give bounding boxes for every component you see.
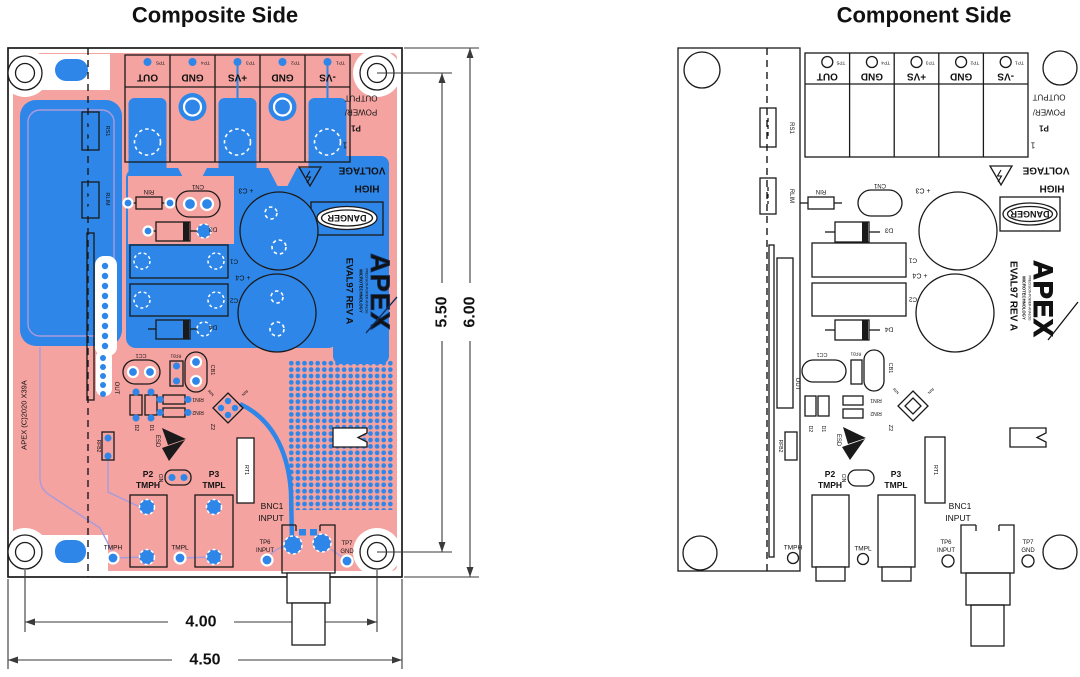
pin1-marker: 1	[342, 141, 347, 150]
testpoint-tp6: TP6 INPUT	[937, 540, 955, 567]
ref-label: Z2	[887, 425, 893, 431]
dim-6-00: 6.00	[462, 296, 479, 327]
pin1-marker: 1	[1030, 141, 1035, 150]
resistor-rfb2: RFB2	[777, 432, 797, 460]
resistor-rin1: RIN1	[843, 396, 882, 405]
testpoint-label: TP7	[341, 541, 353, 547]
ref-label: RT1	[932, 465, 938, 475]
bnc-label: BNC1	[949, 501, 972, 511]
testpoint-label: TMPL	[171, 545, 189, 552]
testpoint-label: GND	[340, 549, 354, 555]
jack-label: P2	[825, 469, 836, 479]
ref-label: RIN	[144, 188, 154, 194]
ref-label: C1	[229, 258, 238, 265]
ref-label: CC1	[816, 351, 827, 357]
logo-wordmark: APEX	[1028, 260, 1058, 338]
ref-label: C2	[229, 297, 238, 304]
ref-label: RFB2	[95, 440, 101, 453]
terminal-name: GND	[181, 72, 203, 83]
warning-text: HIGH	[1040, 183, 1065, 194]
jack-label: P3	[891, 469, 902, 479]
terminal-name: GND	[861, 71, 883, 82]
testpoint-label: TMPH	[104, 545, 123, 552]
logo-microtext: MICROTECHNOLOGY	[1022, 276, 1027, 320]
ref-label: D4	[208, 324, 217, 331]
jack-label: TMPH	[818, 480, 842, 490]
connector-label: POWER/	[1032, 108, 1065, 117]
testpoint-tp7: TP7 GND	[340, 541, 354, 567]
bnc-label: BNC1	[261, 501, 284, 511]
component-title: Component Side	[837, 3, 1012, 28]
capacitor-cn1: CN1	[858, 182, 902, 216]
capacitor-c4: + C4	[912, 272, 994, 353]
ref-label: D1	[148, 425, 154, 432]
trim-network-z2: RIN RIN Z2	[887, 387, 935, 431]
dim-5-50: 5.50	[434, 296, 451, 327]
testpoint-tmpl: TMPL	[854, 546, 872, 565]
ref-label: D3	[884, 227, 893, 234]
ref-label: RFB1	[850, 352, 861, 357]
mounting-hole	[684, 52, 720, 88]
ref-label: C1	[908, 257, 917, 264]
ref-label: RS1	[788, 122, 794, 134]
warning-text: HIGH	[355, 183, 380, 194]
testpoint-label: TP4	[881, 60, 890, 66]
ref-label: CB1	[887, 363, 893, 374]
testpoint-label: TP5	[836, 60, 845, 66]
edge-component-outline	[777, 258, 793, 408]
diode-d3: D3	[825, 222, 893, 242]
testpoint-label: TP3	[246, 60, 255, 66]
board-rev-label: EVAL97 REV A	[344, 258, 355, 325]
testpoint-label: TP2	[970, 60, 979, 66]
terminal-name: OUT	[137, 72, 158, 83]
terminal-name: -VS	[319, 72, 336, 83]
logo-microtext: MICROTECHNOLOGY	[359, 269, 364, 313]
terminal-name: +VS	[228, 72, 248, 83]
resistor-rfb1: RFB1	[850, 352, 862, 385]
composite-board: RS1 RLIM TP5 TP4 TP3 TP2 TP1 OUT GND +VS…	[1, 48, 402, 577]
jack-p3: P3 TMPL	[878, 469, 915, 581]
high-voltage-warning: VOLTAGE HIGH	[990, 165, 1069, 194]
ref-label: CN1	[191, 183, 204, 189]
jack-label: P2	[143, 469, 154, 479]
component-board: RS1 RLIM TP5 TP4 TP3 TP2 TP1 OUT GND +VS…	[678, 48, 1078, 646]
net-label: RIN	[927, 387, 935, 395]
resistor-rlim: RLIM	[760, 178, 794, 214]
capacitor-c1: C1	[812, 243, 917, 277]
ref-label: D3	[208, 226, 217, 233]
dim-4-00: 4.00	[185, 614, 216, 631]
ref-label: RLIM	[104, 192, 110, 206]
resistor-rin2: RIN2	[843, 409, 882, 418]
ref-label: RFB1	[170, 354, 181, 359]
mounting-hole	[683, 536, 717, 570]
testpoint-label: INPUT	[256, 548, 274, 554]
ref-label: RIN2	[870, 410, 882, 416]
warning-text: VOLTAGE	[1022, 165, 1069, 176]
esd-logo: ESD	[835, 427, 866, 460]
apex-logo: EVAL97 REV A MICROTECHNOLOGY PRECISION-P…	[344, 253, 398, 333]
testpoint-label: TP2	[291, 60, 300, 66]
ref-label: ESD	[154, 435, 160, 448]
mounting-hole	[1043, 51, 1077, 85]
ref-label: D2	[133, 425, 139, 432]
bnc-connector: BNC1 INPUT	[945, 501, 1014, 646]
ref-label: CN1	[873, 182, 886, 188]
connector-ref: P1	[351, 124, 361, 133]
top-copper-blob	[55, 540, 86, 563]
testpoint-label: TP7	[1022, 540, 1034, 546]
capacitor-c2: C2	[812, 283, 917, 316]
terminal-name: GND	[271, 72, 293, 83]
danger-label: DANGER	[1000, 197, 1060, 231]
ref-label: Z2	[209, 424, 215, 430]
resistor-rt1: RT1	[925, 437, 945, 503]
diode-d2: D2	[805, 396, 816, 432]
capacitor-cb1: CB1	[864, 350, 893, 391]
pcb-drawing-page: Composite Side Component Side	[0, 0, 1080, 677]
ref-label: D4	[884, 326, 893, 333]
diode-d1: D1	[818, 396, 829, 432]
ref-label: RIN	[816, 188, 826, 194]
connector-label: POWER/	[344, 108, 377, 117]
ref-label: + C3	[238, 187, 253, 194]
ref-label: RLIM	[788, 189, 794, 203]
terminal-block: TP5 TP4 TP3 TP2 TP1 OUT GND +VS GND -VS	[805, 53, 1028, 157]
terminal-name: OUT	[817, 71, 838, 82]
terminal-name: +VS	[907, 71, 927, 82]
ref-label: + C3	[915, 187, 930, 194]
ref-label: D2	[807, 426, 813, 433]
resistor-rs1: RS1	[760, 108, 794, 147]
ref-label: ESD	[835, 434, 841, 447]
net-label: RIN	[892, 387, 900, 395]
terminal-name: -VS	[997, 71, 1014, 82]
warning-text: VOLTAGE	[338, 165, 385, 176]
dim-4-50: 4.50	[189, 652, 220, 669]
capacitor-c3: + C3	[915, 187, 997, 271]
testpoint-label: TP1	[1015, 60, 1024, 66]
net-label: OUT	[794, 378, 800, 391]
capacitor-cc1: CC1	[802, 351, 846, 382]
eval97-board-views: Composite Side Component Side	[0, 0, 1080, 677]
testpoint-label: TP6	[259, 540, 271, 546]
apex-logo: EVAL97 REV A MICROTECHNOLOGY PRECISION-P…	[1008, 260, 1079, 340]
top-copper-blob	[55, 59, 88, 81]
ref-label: RS1	[104, 126, 110, 137]
testpoint-tp7: TP7 GND	[1021, 540, 1035, 567]
testpoint-label: INPUT	[937, 548, 955, 554]
logo-wordmark: APEX	[365, 253, 395, 331]
ref-label: RT1	[243, 465, 249, 475]
jack-label: P3	[209, 469, 220, 479]
terminal-name: GND	[950, 71, 972, 82]
resistor-rin: RIN	[800, 188, 842, 209]
connector-label: OUTPUT	[1032, 93, 1065, 102]
testpoint-label: GND	[1021, 548, 1035, 554]
testpoint-label: TP3	[925, 60, 934, 66]
diode-d4: D4	[825, 320, 893, 340]
mounting-hole	[1043, 535, 1077, 569]
ref-label: + C4	[235, 274, 250, 281]
jack-label: TMPH	[136, 480, 160, 490]
testpoint-label: TP6	[940, 540, 952, 546]
testpoint-label: TMPH	[784, 545, 803, 552]
heatsink-outline	[678, 48, 800, 571]
p1-connector-text: OUTPUT POWER/ P1 1	[1030, 93, 1065, 150]
copyright-text: APEX (C)2020 X39A	[20, 380, 29, 450]
danger-text: DANGER	[1010, 209, 1050, 219]
composite-title: Composite Side	[132, 3, 298, 28]
net-label: OUT	[113, 382, 119, 395]
bnc-label: INPUT	[945, 513, 971, 523]
ref-label: + C4	[912, 272, 927, 279]
ref-label: RFB2	[777, 440, 783, 453]
ref-label: CB1	[209, 365, 215, 376]
testpoint-label: TP4	[201, 60, 210, 66]
connector-label: OUTPUT	[344, 94, 377, 103]
danger-text: DANGER	[327, 213, 367, 223]
bnc-label: INPUT	[258, 513, 284, 523]
connector-ref: P1	[1039, 124, 1049, 133]
board-rev-label: EVAL97 REV A	[1008, 261, 1019, 331]
bnc-barrel	[287, 573, 330, 645]
ref-label: RIN1	[870, 397, 882, 403]
testpoint-label: TMPL	[854, 546, 872, 553]
ref-label: RIN2	[192, 409, 204, 415]
notched-plate	[1010, 428, 1046, 447]
edge-component-outline	[769, 245, 774, 557]
testpoint-label: TP5	[156, 60, 165, 66]
jack-label: TMPL	[884, 480, 907, 490]
resistor-rt1: RT1	[237, 438, 254, 503]
capacitor-cin: CIN	[840, 470, 874, 486]
ref-label: CC1	[135, 352, 146, 358]
jack-p2: P2 TMPH	[812, 469, 849, 581]
jack-label: TMPL	[202, 480, 225, 490]
testpoint-label: TP1	[336, 60, 345, 66]
ref-label: RIN1	[192, 396, 204, 402]
ref-label: C2	[908, 296, 917, 303]
ref-label: D1	[820, 426, 826, 433]
